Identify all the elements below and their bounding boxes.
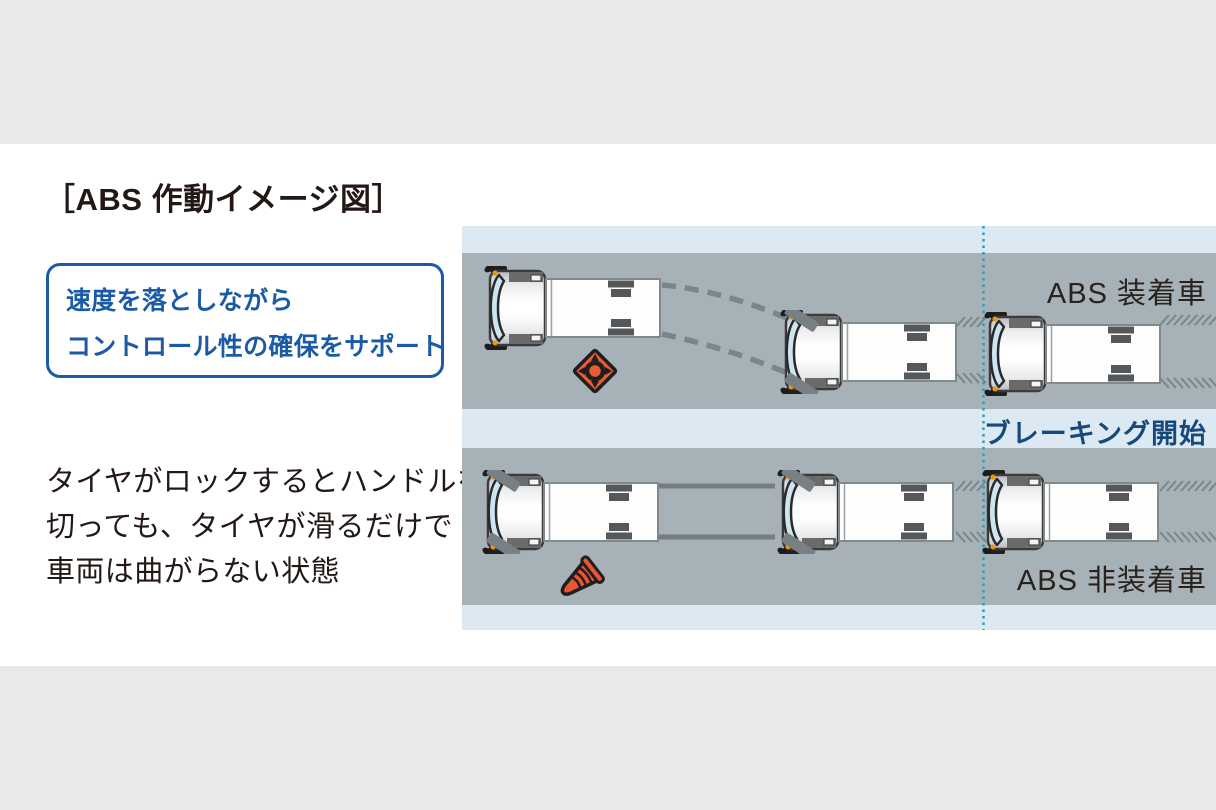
- truck-abs-avoided: [483, 263, 660, 353]
- truck-abs-braking-start: [983, 309, 1160, 399]
- hazard-diamond-icon: [574, 350, 616, 392]
- desc-line-3: 車両は曲がらない状態: [46, 550, 486, 595]
- abs-operation-diagram: ABS 装着車 ブレーキング開始 ABS 非装着車: [462, 226, 1216, 630]
- desc-line-1: タイヤがロックするとハンドルを: [46, 460, 486, 505]
- callout-line-2: コントロール性の確保をサポート: [66, 324, 441, 370]
- truck-nonabs-straight-crash: [481, 464, 658, 560]
- top-gray-bar: [0, 0, 1216, 144]
- truck-nonabs-sliding: [776, 464, 953, 560]
- abs-lane-label: ABS 装着車: [1047, 270, 1207, 312]
- lock-description: タイヤがロックするとハンドルを 切っても、タイヤが滑るだけで 車両は曲がらない状…: [46, 460, 486, 595]
- truck-abs-steering: [779, 304, 956, 400]
- non-abs-lane-label: ABS 非装着車: [1017, 557, 1207, 599]
- bottom-gray-bar: [0, 666, 1216, 810]
- fallen-cone-icon: [554, 556, 605, 605]
- truck-nonabs-braking-start: [981, 467, 1158, 557]
- abs-swerve-tire-tracks: [662, 285, 794, 375]
- page-title: ［ABS 作動イメージ図］: [44, 174, 403, 219]
- abs-benefit-callout: 速度を落としながら コントロール性の確保をサポート: [46, 263, 444, 378]
- abs-brochure-page: { "page": { "background": "#ffffff", "to…: [0, 0, 1216, 810]
- callout-line-1: 速度を落としながら: [66, 278, 441, 324]
- desc-line-2: 切っても、タイヤが滑るだけで: [46, 505, 486, 550]
- braking-start-label: ブレーキング開始: [984, 412, 1207, 451]
